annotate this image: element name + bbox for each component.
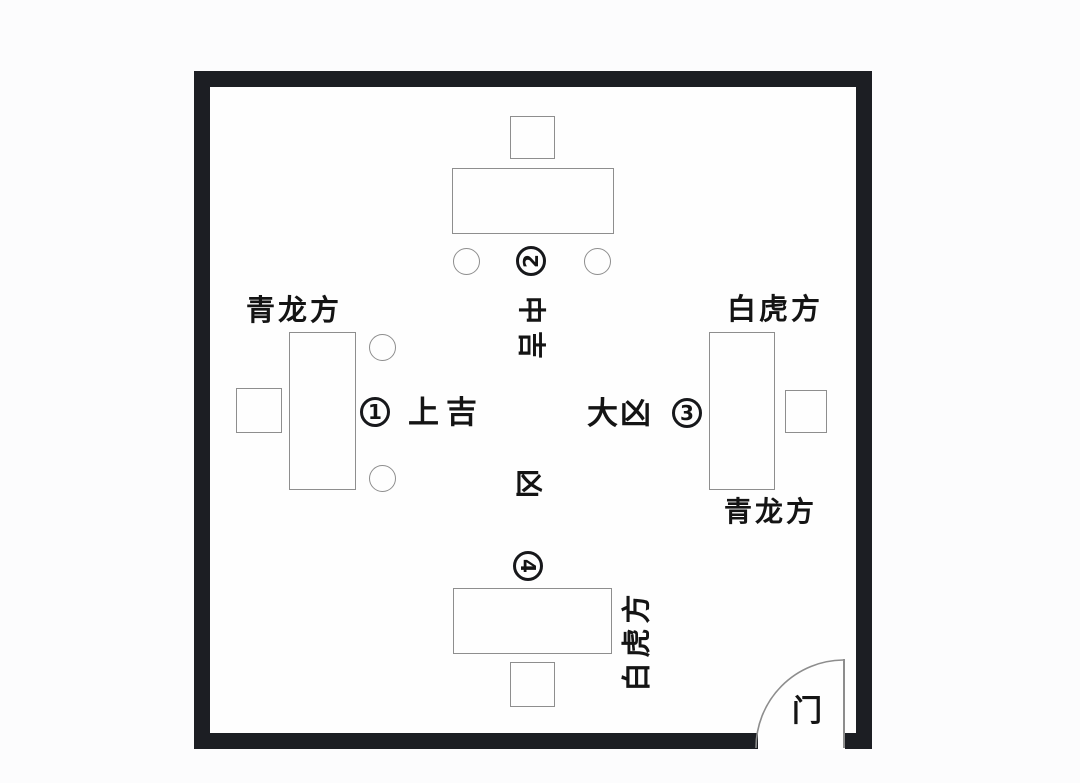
position-marker-1: 1 bbox=[360, 397, 390, 427]
position-marker-3: 3 bbox=[672, 398, 702, 428]
door-leaf bbox=[843, 659, 845, 748]
chair-desk4 bbox=[510, 662, 555, 707]
luck-label-position-1: 上吉 bbox=[408, 396, 484, 430]
chair-desk1 bbox=[236, 388, 282, 433]
chair-desk2 bbox=[510, 116, 555, 159]
guest-chair-desk1-top bbox=[369, 334, 396, 361]
luck-label-position-2: 中吉 bbox=[499, 299, 563, 363]
chair-desk3 bbox=[785, 390, 827, 433]
direction-label-white-tiger-bottom: 白虎方 bbox=[586, 589, 688, 691]
guest-chair-desk2-right bbox=[584, 248, 611, 275]
desk-fengshui-floor-plan: 门 2 中吉 青龙方 1 上吉 白虎方 3 大凶 青龙方 凶 4 白虎方 bbox=[0, 0, 1080, 783]
door-label: 门 bbox=[781, 686, 833, 730]
direction-label-white-tiger-bottom-text: 白虎方 bbox=[623, 589, 652, 691]
position-marker-4: 4 bbox=[513, 551, 543, 581]
luck-label-position-4-text: 凶 bbox=[514, 468, 543, 497]
luck-label-position-3: 大凶 bbox=[587, 397, 653, 431]
luck-label-position-4: 凶 bbox=[512, 466, 546, 500]
direction-label-azure-dragon-left: 青龙方 bbox=[246, 295, 342, 327]
desk-2 bbox=[452, 168, 614, 234]
guest-chair-desk2-left bbox=[453, 248, 480, 275]
position-marker-2: 2 bbox=[516, 246, 546, 276]
guest-chair-desk1-bottom bbox=[369, 465, 396, 492]
desk-1 bbox=[289, 332, 356, 490]
direction-label-white-tiger-right: 白虎方 bbox=[727, 294, 823, 326]
luck-label-position-2-text: 中吉 bbox=[517, 296, 545, 366]
direction-label-azure-dragon-right: 青龙方 bbox=[724, 497, 817, 528]
desk-3 bbox=[709, 332, 775, 490]
